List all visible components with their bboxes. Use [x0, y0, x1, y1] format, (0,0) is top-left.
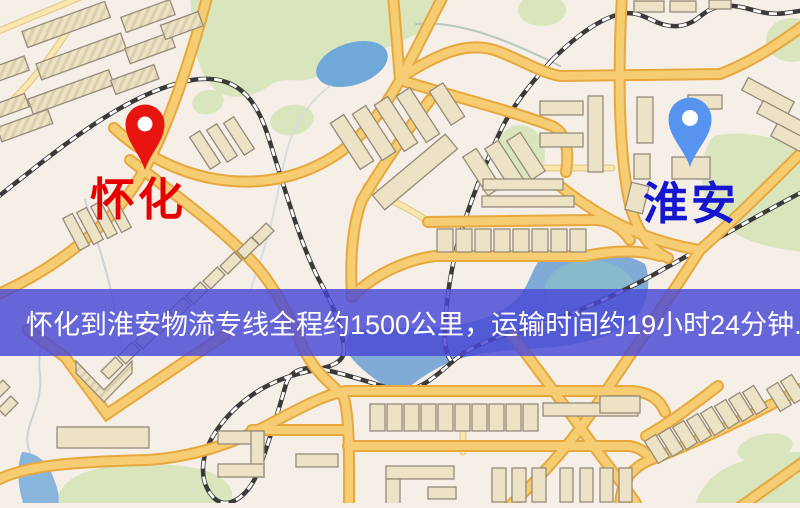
red-map-pin-icon [122, 104, 168, 172]
route-info-text: 怀化到淮安物流专线全程约1500公里，运输时间约19小时24分钟. [0, 303, 800, 342]
origin-pin[interactable] [122, 104, 168, 172]
origin-city-label: 怀化 [90, 177, 186, 222]
map-canvas[interactable] [0, 0, 800, 503]
destination-pin[interactable] [666, 97, 714, 169]
route-info-banner: 怀化到淮安物流专线全程约1500公里，运输时间约19小时24分钟. [0, 289, 800, 356]
destination-city-label: 淮安 [643, 181, 739, 226]
blue-map-pin-icon [666, 97, 714, 169]
